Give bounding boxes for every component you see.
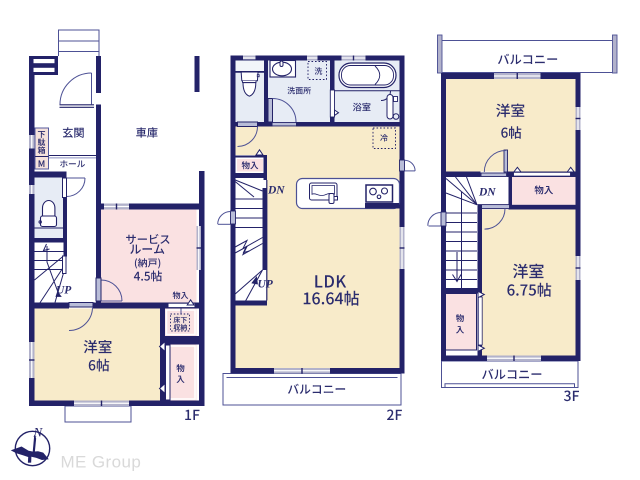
svg-text:N: N bbox=[33, 425, 44, 440]
svg-text:ME Group: ME Group bbox=[61, 453, 142, 472]
svg-text:DN: DN bbox=[478, 187, 496, 199]
svg-text:DN: DN bbox=[267, 185, 285, 197]
svg-text:UP: UP bbox=[258, 279, 274, 291]
svg-text:UP: UP bbox=[56, 285, 72, 297]
